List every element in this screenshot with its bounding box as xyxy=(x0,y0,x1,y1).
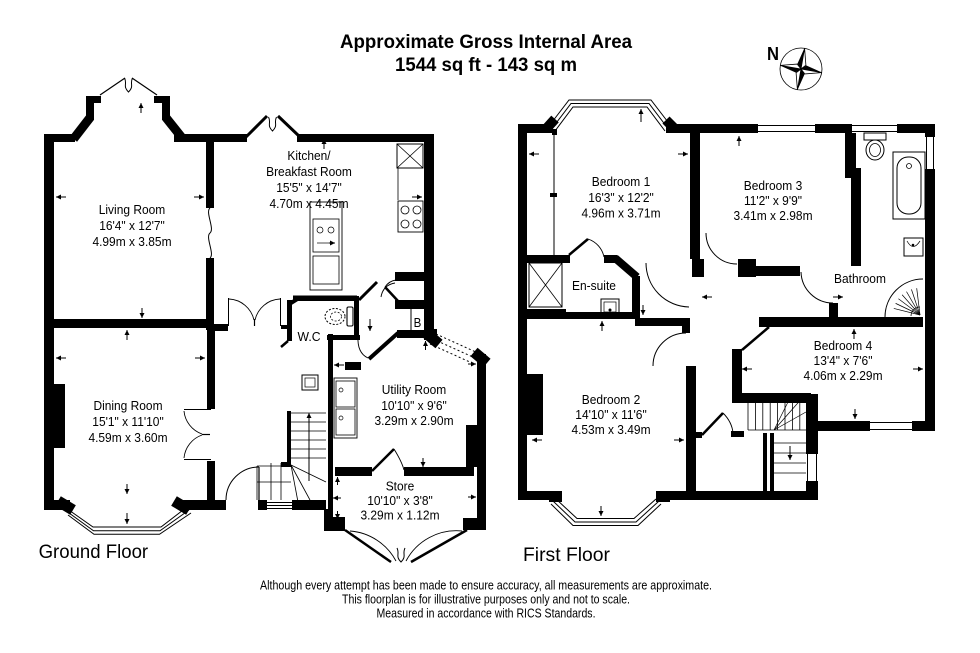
svg-text:Bedroom 4: Bedroom 4 xyxy=(814,338,873,353)
svg-text:16'3" x 12'2": 16'3" x 12'2" xyxy=(588,190,654,205)
svg-text:This floorplan is for illustra: This floorplan is for illustrative purpo… xyxy=(342,593,630,607)
svg-text:4.70m x 4.45m: 4.70m x 4.45m xyxy=(269,196,348,211)
svg-text:15'5" x 14'7": 15'5" x 14'7" xyxy=(276,180,342,195)
svg-text:Utility Room: Utility Room xyxy=(382,382,447,397)
svg-text:Breakfast Room: Breakfast Room xyxy=(266,164,352,179)
svg-text:16'4" x 12'7": 16'4" x 12'7" xyxy=(99,218,165,233)
svg-text:Ground Floor: Ground Floor xyxy=(39,541,149,563)
svg-text:Bedroom 2: Bedroom 2 xyxy=(582,392,641,407)
svg-text:Approximate Gross Internal Are: Approximate Gross Internal Area xyxy=(340,31,632,53)
svg-text:4.53m x 3.49m: 4.53m x 3.49m xyxy=(571,422,650,437)
svg-text:15'1" x 11'10": 15'1" x 11'10" xyxy=(92,414,164,429)
svg-text:4.99m x 3.85m: 4.99m x 3.85m xyxy=(92,234,171,249)
svg-text:Although every attempt has bee: Although every attempt has been made to … xyxy=(260,579,712,593)
svg-text:11'2" x 9'9": 11'2" x 9'9" xyxy=(744,193,802,208)
svg-text:10'10" x 9'6": 10'10" x 9'6" xyxy=(381,398,447,413)
svg-text:Bedroom 3: Bedroom 3 xyxy=(744,178,803,193)
svg-text:Measured in accordance with RI: Measured in accordance with RICS Standar… xyxy=(377,607,596,621)
svg-text:1544 sq ft - 143 sq m: 1544 sq ft - 143 sq m xyxy=(395,54,577,76)
svg-text:Living Room: Living Room xyxy=(99,202,166,217)
svg-text:14'10" x 11'6": 14'10" x 11'6" xyxy=(575,407,647,422)
svg-text:4.06m x 2.29m: 4.06m x 2.29m xyxy=(803,368,882,383)
svg-text:Bathroom: Bathroom xyxy=(834,271,886,286)
svg-text:4.96m x 3.71m: 4.96m x 3.71m xyxy=(581,206,660,221)
svg-text:3.41m x 2.98m: 3.41m x 2.98m xyxy=(733,208,812,223)
svg-text:10'10" x 3'8": 10'10" x 3'8" xyxy=(367,493,433,508)
svg-text:3.29m x 2.90m: 3.29m x 2.90m xyxy=(374,413,453,428)
svg-text:13'4" x 7'6": 13'4" x 7'6" xyxy=(814,353,873,368)
svg-text:First Floor: First Floor xyxy=(523,544,611,566)
svg-text:W.C: W.C xyxy=(298,329,321,344)
svg-text:En-suite: En-suite xyxy=(572,278,616,293)
svg-text:B: B xyxy=(414,316,422,330)
svg-text:Kitchen/: Kitchen/ xyxy=(287,148,331,163)
svg-text:Store: Store xyxy=(386,479,415,494)
svg-text:4.59m x 3.60m: 4.59m x 3.60m xyxy=(88,430,167,445)
svg-text:N: N xyxy=(767,44,779,64)
svg-text:Bedroom 1: Bedroom 1 xyxy=(592,174,651,189)
svg-text:3.29m x 1.12m: 3.29m x 1.12m xyxy=(360,508,439,523)
svg-text:Dining Room: Dining Room xyxy=(93,398,162,413)
